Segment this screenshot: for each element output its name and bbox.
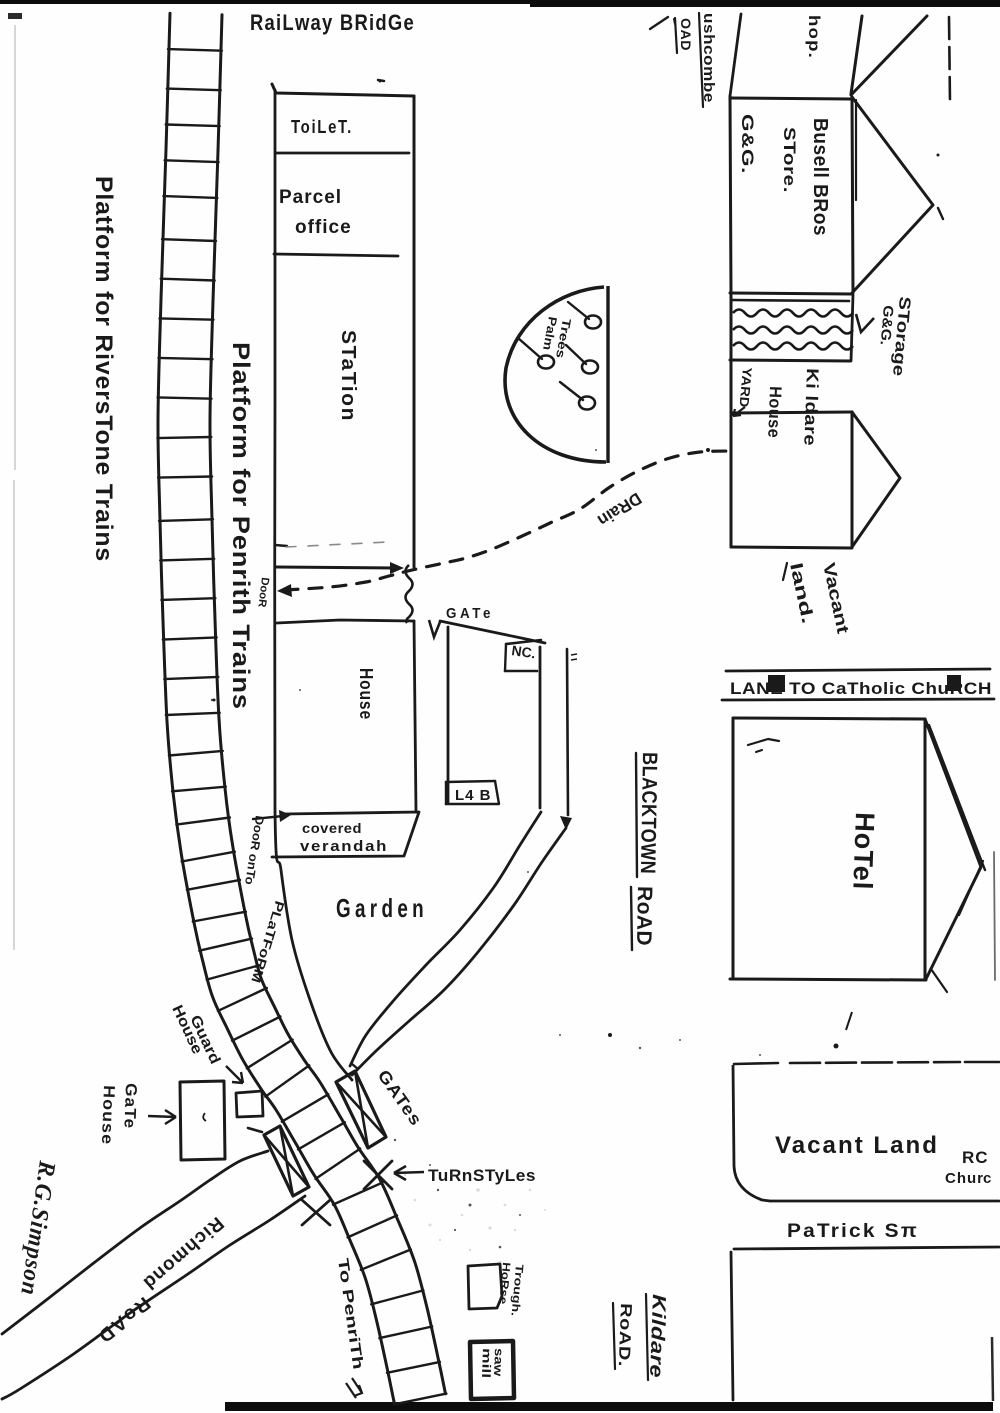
svg-text:Ki ldare: Ki ldare — [800, 368, 822, 447]
svg-text:STaTion: STaTion — [337, 330, 359, 422]
svg-text:Parcel: Parcel — [279, 187, 342, 208]
svg-text:TuRnSTyLes: TuRnSTyLes — [428, 1166, 536, 1185]
svg-text:RoAD: RoAD — [632, 886, 656, 946]
svg-text:HoTel: HoTel — [847, 812, 880, 891]
svg-text:PaTrick Sπ: PaTrick Sπ — [787, 1221, 919, 1242]
svg-text:GATe: GATe — [446, 605, 494, 622]
svg-text:Platform for Penrith Trains: Platform for Penrith Trains — [227, 342, 254, 710]
svg-text:L4 B: L4 B — [455, 787, 492, 804]
svg-text:NC.: NC. — [511, 642, 537, 661]
svg-text:STore.: STore. — [780, 127, 799, 193]
svg-text:Vacant Land: Vacant Land — [775, 1132, 939, 1159]
svg-text:RaiLway BRidGe: RaiLway BRidGe — [250, 10, 415, 35]
svg-text:Platform for RiversTone Trains: Platform for RiversTone Trains — [90, 176, 117, 562]
svg-text:verandah: verandah — [300, 838, 388, 855]
svg-text:RoAD.: RoAD. — [615, 1303, 634, 1368]
svg-text:G&G.: G&G. — [738, 114, 757, 174]
svg-text:covered: covered — [302, 820, 362, 836]
svg-text:House: House — [764, 386, 785, 439]
svg-text:OAD: OAD — [678, 18, 694, 51]
svg-text:GaTe: GaTe — [120, 1083, 139, 1130]
svg-text:House: House — [356, 668, 376, 720]
svg-text:Chur: Chur — [945, 1170, 984, 1187]
svg-text:House: House — [98, 1085, 117, 1146]
svg-text:RC: RC — [962, 1148, 989, 1167]
svg-text:Busell BRos: Busell BRos — [809, 118, 831, 236]
svg-text:c: c — [983, 1170, 991, 1187]
svg-text:ToiLeT.: ToiLeT. — [291, 117, 353, 137]
svg-text:office: office — [295, 217, 352, 238]
svg-text:Garden: Garden — [336, 893, 428, 923]
svg-text:hop.: hop. — [805, 15, 822, 59]
svg-text:mill: mill — [479, 1348, 494, 1378]
svg-text:BLACKTOWN: BLACKTOWN — [636, 752, 661, 874]
